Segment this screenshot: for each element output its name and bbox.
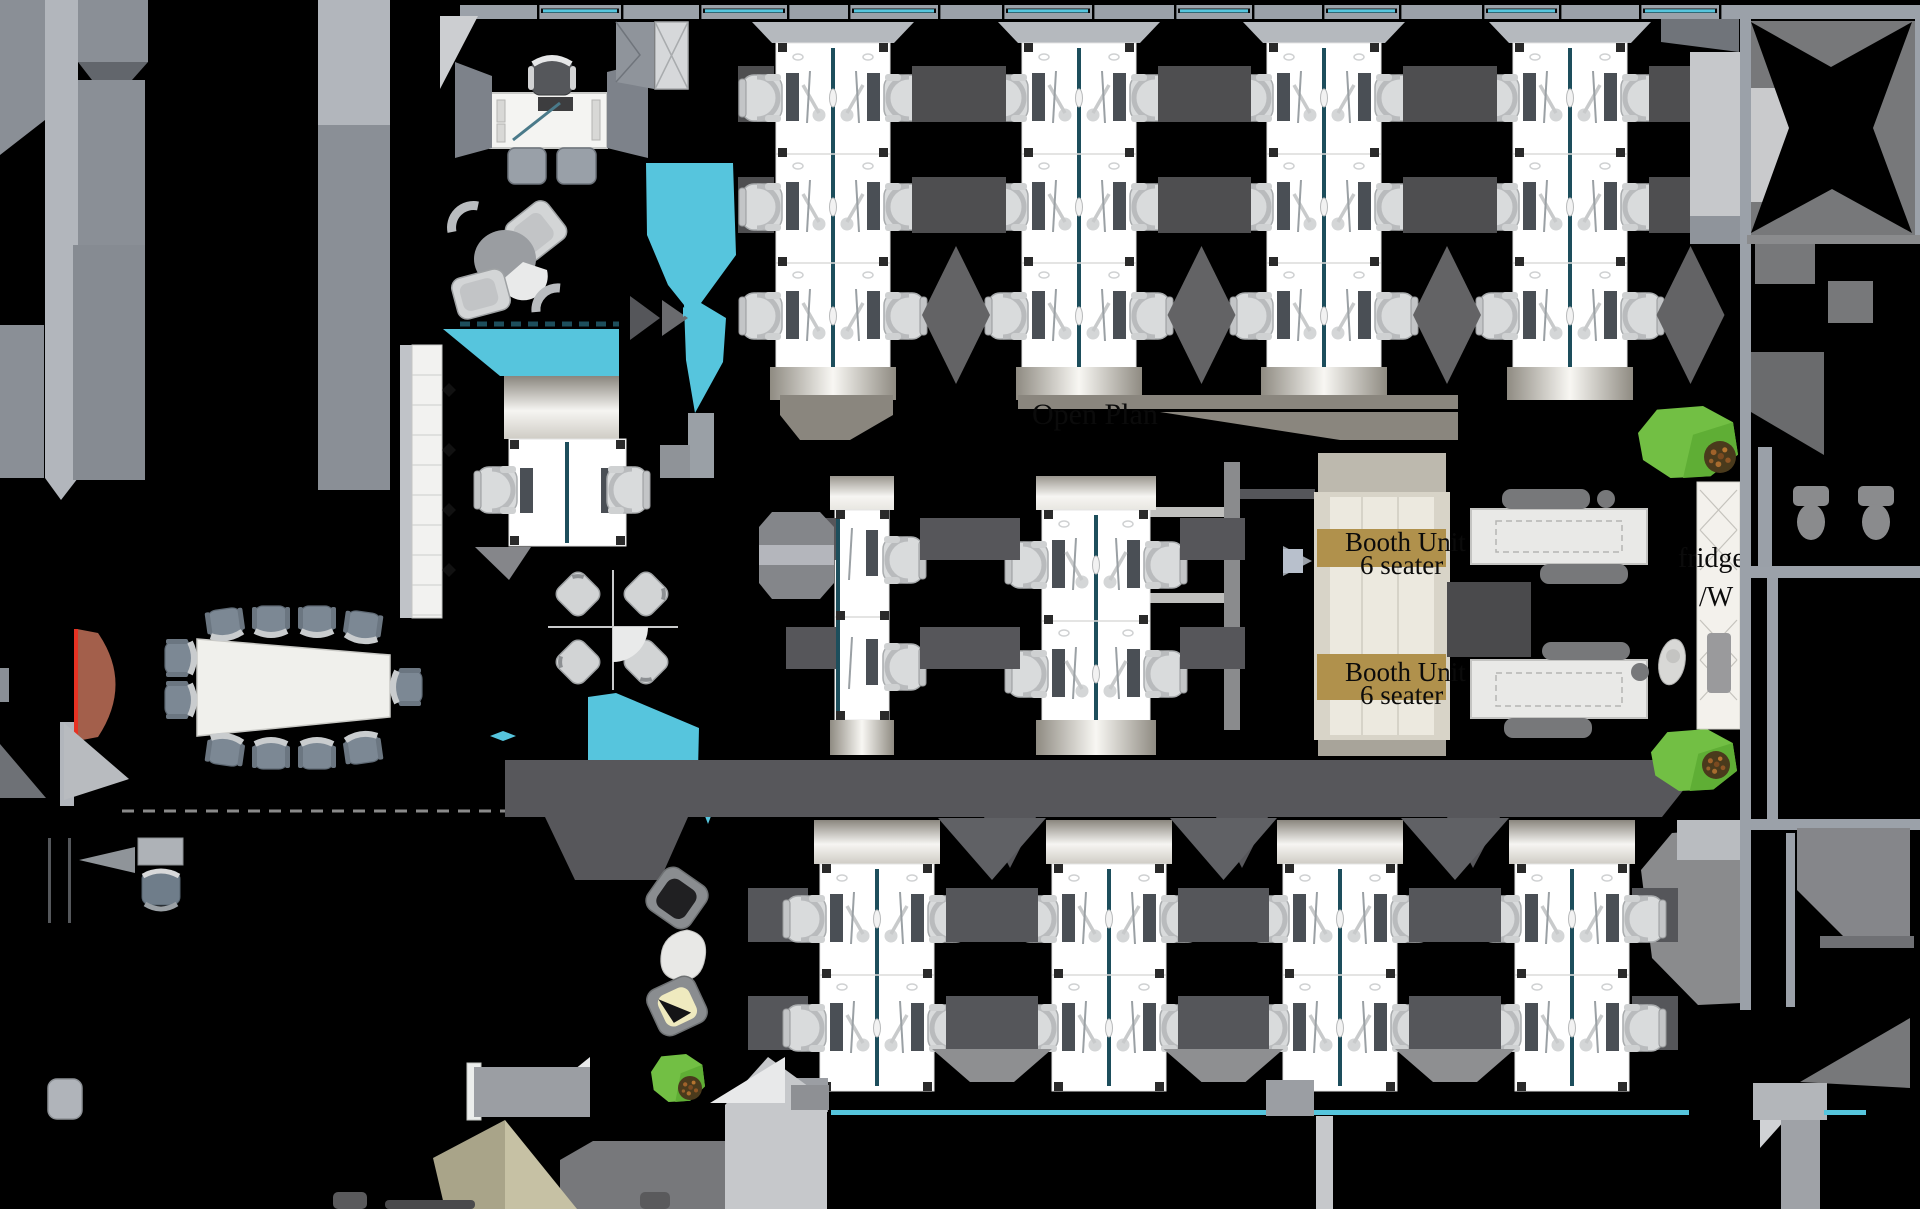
svg-text:6 seater: 6 seater: [1360, 680, 1443, 710]
svg-text:/W: /W: [1699, 582, 1734, 613]
svg-text:6 seater: 6 seater: [1360, 550, 1443, 580]
svg-text:fridge: fridge: [1678, 543, 1745, 574]
svg-text:Open Plan: Open Plan: [1032, 398, 1158, 431]
